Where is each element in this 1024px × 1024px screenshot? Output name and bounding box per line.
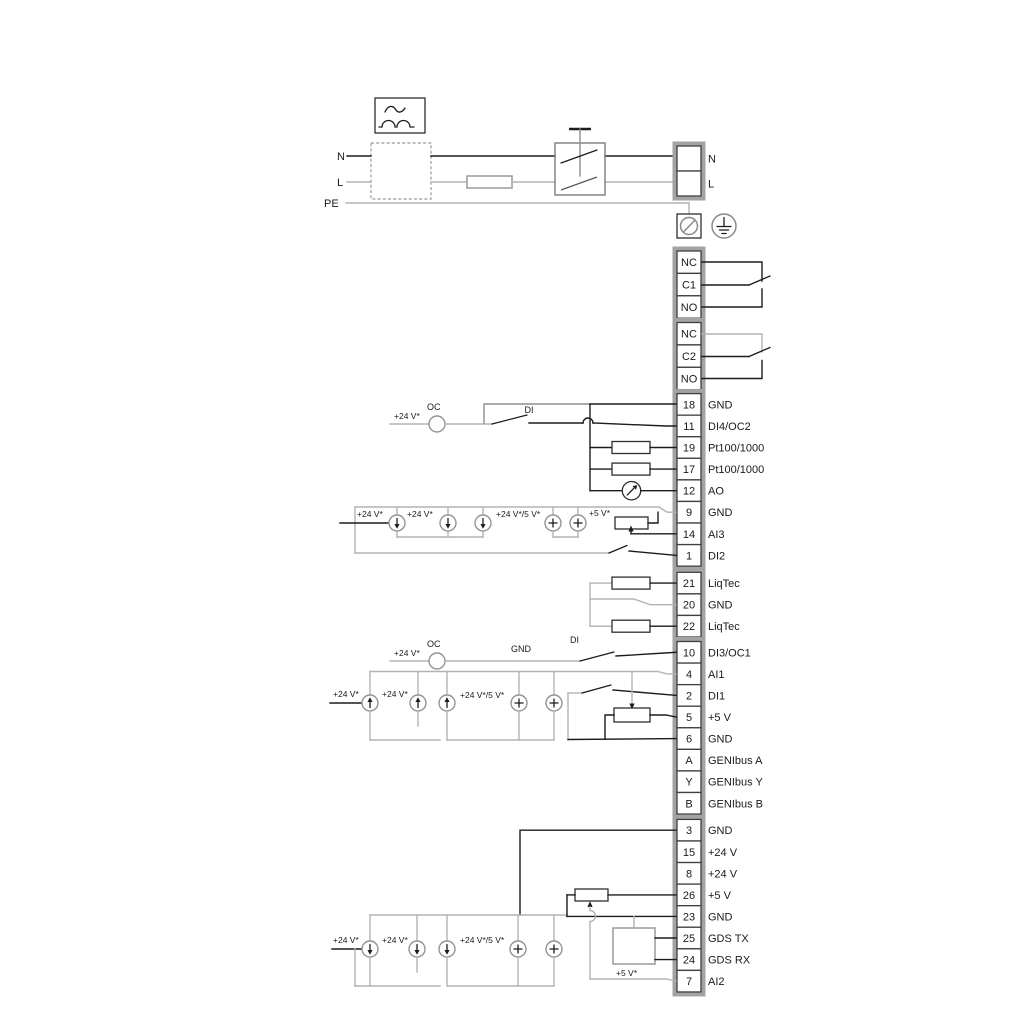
mains-n-label: N [337, 151, 345, 163]
current-source-icon [362, 941, 378, 957]
svg-text:21: 21 [683, 578, 695, 590]
terminal-strip-a: 18GND11DI4/OC219Pt100/100017Pt100/100012… [675, 391, 765, 569]
svg-text:4: 4 [686, 669, 692, 681]
s1-v3-label: +24 V*/5 V* [496, 509, 541, 519]
svg-text:22: 22 [683, 621, 695, 633]
s2-v3-label: +24 V*/5 V* [460, 690, 505, 700]
s3-v2-label: +24 V* [382, 935, 408, 945]
current-source-icon [440, 515, 456, 531]
svg-text:AI1: AI1 [708, 669, 725, 681]
signal-source-icon [546, 695, 562, 711]
s1-oc-circle [429, 416, 445, 432]
svg-text:12: 12 [683, 486, 695, 498]
svg-text:7: 7 [686, 976, 692, 988]
s1-di-label: DI [525, 405, 534, 415]
di3-switch [580, 652, 614, 661]
svg-text:GND: GND [708, 507, 733, 519]
svg-text:11: 11 [683, 421, 694, 433]
svg-text:LiqTec: LiqTec [708, 578, 740, 590]
liqtec-resistor-1 [612, 577, 650, 589]
svg-text:AI3: AI3 [708, 529, 725, 541]
wiring-diagram: N L PE NL [0, 0, 1024, 1024]
svg-text:24: 24 [683, 955, 695, 967]
svg-text:GDS TX: GDS TX [708, 933, 749, 945]
svg-text:N: N [708, 154, 716, 166]
gds-sensor-box [613, 928, 655, 964]
svg-text:5: 5 [686, 712, 692, 724]
current-source-icon [362, 695, 378, 711]
svg-text:L: L [708, 179, 714, 191]
s1-di-switch [492, 415, 527, 424]
liqtec-resistor-2 [612, 620, 650, 632]
s2-oc-label: OC [427, 639, 441, 649]
current-source-icon [475, 515, 491, 531]
section3-wiring: +5 V* +24 V* +24 V* +24 V*/5 V* [332, 830, 676, 986]
svg-text:C1: C1 [682, 280, 696, 292]
svg-text:2: 2 [686, 690, 692, 702]
mains-wave-symbol [375, 98, 425, 133]
svg-text:Pt100/1000: Pt100/1000 [708, 464, 764, 476]
svg-text:8: 8 [686, 868, 692, 880]
terminal-strip-liqtec: 21LiqTec20GND22LiqTec [675, 570, 741, 640]
s1-v2-label: +24 V* [407, 509, 433, 519]
svg-text:Pt100/1000: Pt100/1000 [708, 443, 764, 455]
earth-terminal [677, 214, 701, 238]
svg-text:B: B [685, 798, 692, 810]
wiring-diagram-page: N L PE NL [0, 0, 1024, 1024]
svg-text:3: 3 [686, 825, 692, 837]
svg-text:DI4/OC2: DI4/OC2 [708, 421, 751, 433]
s2-v2-label: +24 V* [382, 689, 408, 699]
section2-wiring: +24 V* OC GND DI +24 V* +24 V* +24 V*/5 … [330, 635, 676, 740]
svg-text:GENIbus B: GENIbus B [708, 798, 763, 810]
s3-v3-label: +24 V*/5 V* [460, 935, 505, 945]
svg-text:NC: NC [681, 257, 697, 269]
signal-source-icon [570, 515, 586, 531]
potentiometer-ai2 [575, 889, 608, 901]
s3-v5-label: +5 V* [616, 968, 638, 978]
ao-meter-icon [622, 482, 640, 500]
svg-text:6: 6 [686, 734, 692, 746]
svg-text:AO: AO [708, 486, 724, 498]
svg-text:18: 18 [683, 399, 695, 411]
svg-text:NO: NO [681, 374, 698, 386]
current-source-icon [389, 515, 405, 531]
current-source-icon [410, 695, 426, 711]
svg-text:DI2: DI2 [708, 550, 725, 562]
potentiometer-ai1 [614, 708, 650, 722]
s2-oc-circle [429, 653, 445, 669]
s1-supply-label: +24 V* [394, 411, 420, 421]
di2-switch [609, 546, 627, 554]
s1-v1-label: +24 V* [357, 509, 383, 519]
mains-terminal-block: NL [675, 144, 717, 199]
svg-text:DI3/OC1: DI3/OC1 [708, 647, 751, 659]
svg-text:GND: GND [708, 825, 733, 837]
signal-source-icon [511, 695, 527, 711]
fuse [467, 176, 512, 188]
svg-text:AI2: AI2 [708, 976, 725, 988]
mains-section: N L PE [324, 98, 689, 214]
pt100-resistor-2 [612, 463, 650, 475]
svg-text:Y: Y [685, 777, 693, 789]
mains-l-label: L [337, 177, 343, 189]
protective-earth-icon [712, 214, 736, 238]
svg-text:+5 V: +5 V [708, 712, 732, 724]
svg-text:C2: C2 [682, 351, 696, 363]
svg-text:DI1: DI1 [708, 690, 725, 702]
svg-text:26: 26 [683, 890, 695, 902]
svg-text:LiqTec: LiqTec [708, 621, 740, 633]
relay2-block: NCC2NO [675, 320, 704, 392]
signal-source-icon [510, 941, 526, 957]
mains-pe-label: PE [324, 198, 339, 210]
svg-text:A: A [685, 755, 693, 767]
relay2-contacts [702, 334, 770, 379]
relay1-contacts [702, 262, 770, 307]
s2-di-label: DI [570, 635, 579, 645]
svg-text:GND: GND [708, 734, 733, 746]
di1-switch [582, 685, 611, 693]
svg-text:17: 17 [683, 464, 695, 476]
svg-text:25: 25 [683, 933, 695, 945]
signal-source-icon [545, 515, 561, 531]
svg-text:9: 9 [686, 507, 692, 519]
terminal-strip-c: 3GND15+24 V8+24 V26+5 V23GND25GDS TX24GD… [675, 817, 751, 995]
svg-text:+24 V: +24 V [708, 868, 738, 880]
svg-text:GENIbus A: GENIbus A [708, 755, 763, 767]
s3-v1-label: +24 V* [333, 935, 359, 945]
relay1-block: NCC1NO [675, 249, 704, 321]
terminal-strip-b: 10DI3/OC14AI12DI15+5 V6GNDAGENIbus AYGEN… [675, 639, 764, 817]
svg-text:NC: NC [681, 329, 697, 341]
svg-text:+24 V: +24 V [708, 847, 738, 859]
mains-switch [555, 129, 605, 195]
svg-text:10: 10 [683, 647, 695, 659]
signal-source-icon [546, 941, 562, 957]
liqtec-wiring [590, 577, 676, 632]
svg-text:GND: GND [708, 399, 733, 411]
s1-oc-label: OC [427, 402, 441, 412]
mains-dashed-box [371, 143, 431, 199]
svg-text:GND: GND [708, 600, 733, 612]
svg-text:19: 19 [683, 443, 695, 455]
current-source-icon [439, 695, 455, 711]
svg-text:GND: GND [708, 911, 733, 923]
svg-text:1: 1 [686, 550, 692, 562]
svg-text:GENIbus Y: GENIbus Y [708, 777, 763, 789]
s2-v1-label: +24 V* [333, 689, 359, 699]
current-source-icon [409, 941, 425, 957]
pt100-resistor-1 [612, 442, 650, 454]
s2-gnd-label: GND [511, 644, 532, 654]
svg-text:23: 23 [683, 911, 695, 923]
current-source-icon [439, 941, 455, 957]
svg-text:20: 20 [683, 600, 695, 612]
svg-text:+5 V: +5 V [708, 890, 732, 902]
s2-supply-label: +24 V* [394, 648, 420, 658]
svg-text:NO: NO [681, 302, 698, 314]
s1-v4-label: +5 V* [589, 508, 611, 518]
svg-text:GDS RX: GDS RX [708, 955, 751, 967]
svg-text:14: 14 [683, 529, 695, 541]
svg-text:15: 15 [683, 847, 695, 859]
section1-wiring: +24 V* OC DI +24 V* +24 V* +24 V*/5 V* +… [340, 402, 676, 555]
